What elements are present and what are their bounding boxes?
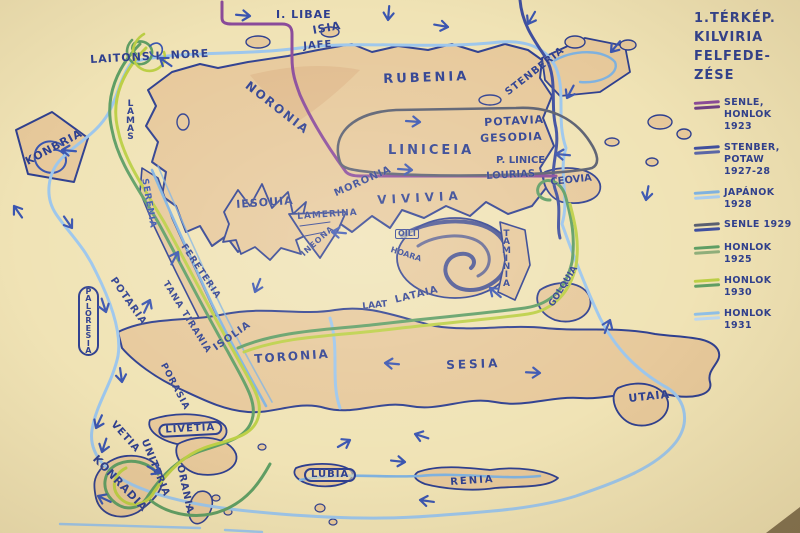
direction-arrow-icon [383, 6, 394, 21]
direction-arrow-icon [115, 367, 127, 382]
direction-arrow-icon [97, 297, 111, 313]
direction-arrow-icon [250, 277, 265, 294]
legend-swatch-senle-1929 [694, 222, 721, 234]
legend-label-senle-honlok-1923: SENLE, HONLOK 1923 [724, 97, 798, 133]
legend-entry-honlok-1930: HONLOK 1930 [694, 275, 798, 299]
legend-entry-senle-1929: SENLE 1929 [694, 219, 798, 233]
legend-entry-japanok-1928: JAPÁNOK 1928 [694, 187, 798, 211]
legend-entry-stenber-potaw-1927-28: STENBER, POTAW 1927-28 [694, 142, 798, 178]
direction-arrow-icon [607, 38, 624, 55]
direction-arrow-icon [96, 491, 113, 506]
legend-entry-honlok-1925: HONLOK 1925 [694, 242, 798, 266]
legend-swatch-honlok-1930 [694, 278, 721, 290]
direction-arrow-icon [391, 456, 406, 467]
direction-arrow-icon [487, 284, 504, 301]
legend-label-stenber-potaw-1927-28: STENBER, POTAW 1927-28 [724, 142, 780, 178]
direction-arrow-icon [60, 214, 76, 231]
direction-arrow-icon [419, 495, 434, 507]
legend: 1.TÉRKÉP. KILVIRIA FELFEDE- ZÉSE SENLE, … [694, 10, 798, 341]
legend-label-honlok-1930: HONLOK 1930 [724, 275, 798, 299]
legend-swatch-japanok-1928 [694, 190, 721, 202]
direction-arrow-icon [433, 20, 449, 32]
direction-arrow-icon [385, 358, 400, 369]
direction-arrow-icon [398, 164, 413, 175]
direction-arrow-icon [97, 437, 111, 453]
direction-arrow-icon [641, 185, 653, 201]
direction-arrow-icon [413, 429, 429, 443]
legend-title: 1.TÉRKÉP. KILVIRIA FELFEDE- ZÉSE [694, 10, 798, 85]
legend-swatch-senle-honlok-1923 [694, 100, 721, 112]
legend-entry-senle-honlok-1923: SENLE, HONLOK 1923 [694, 97, 798, 133]
direction-arrow-icon [406, 116, 421, 127]
legend-label-japanok-1928: JAPÁNOK 1928 [724, 187, 775, 211]
direction-arrow-icon [91, 413, 106, 430]
direction-arrow-icon [524, 9, 540, 26]
direction-arrow-icon [62, 145, 77, 156]
legend-swatch-honlok-1925 [694, 245, 721, 257]
legend-label-honlok-1925: HONLOK 1925 [724, 242, 798, 266]
direction-arrow-icon [600, 318, 615, 335]
legend-label-senle-1929: SENLE 1929 [724, 219, 792, 231]
direction-arrow-icon [167, 250, 182, 267]
direction-arrow-icon [157, 54, 174, 70]
legend-swatch-stenber-potaw-1927-28 [694, 145, 721, 157]
direction-arrows-layer [0, 0, 800, 533]
hand-drawn-map: LAITONS I. NOREI. LIBAEISIAJAFENORONIARU… [0, 0, 800, 533]
direction-arrow-icon [335, 436, 352, 452]
direction-arrow-icon [563, 83, 578, 100]
legend-entry-honlok-1931: HONLOK 1931 [694, 308, 798, 332]
legend-label-honlok-1931: HONLOK 1931 [724, 308, 798, 332]
direction-arrow-icon [145, 462, 162, 477]
legend-entries: SENLE, HONLOK 1923STENBER, POTAW 1927-28… [694, 97, 798, 331]
photo-corner-shadow [766, 507, 800, 533]
direction-arrow-icon [236, 10, 251, 21]
direction-arrow-icon [556, 149, 571, 160]
direction-arrow-icon [140, 298, 155, 315]
direction-arrow-icon [332, 227, 347, 238]
legend-swatch-honlok-1931 [694, 311, 721, 323]
direction-arrow-icon [526, 367, 541, 378]
direction-arrow-icon [10, 203, 26, 220]
